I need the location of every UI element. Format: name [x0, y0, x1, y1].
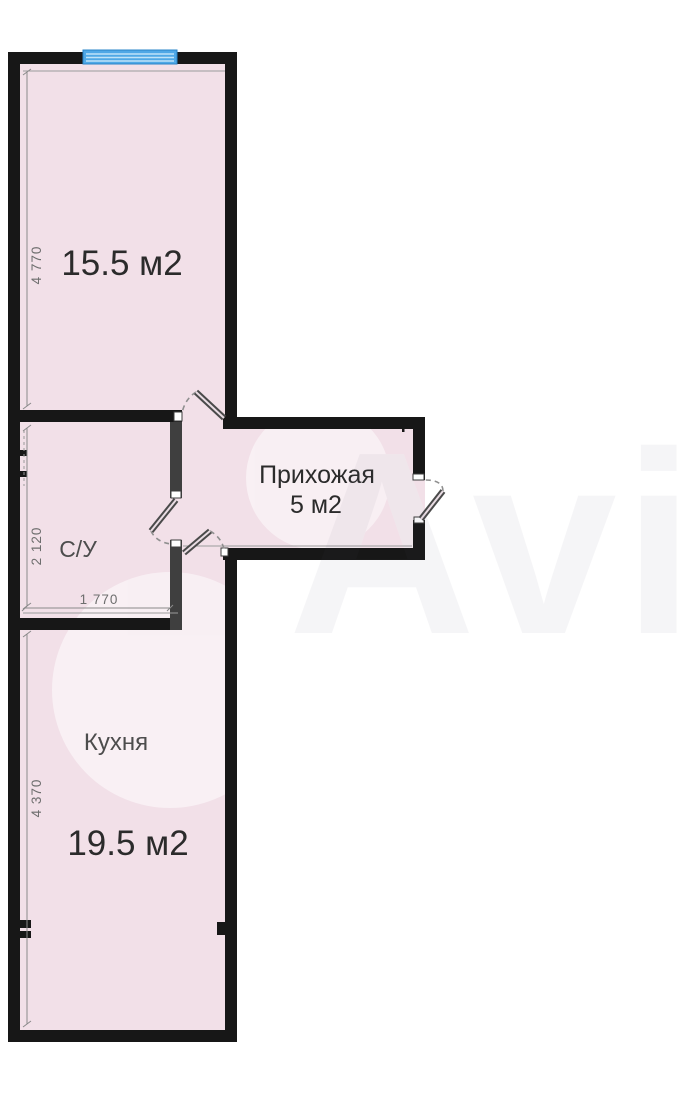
dimension-living-wall: 4 770 [29, 246, 44, 285]
door-jamb-kitchen [221, 548, 228, 556]
floor-plan-image: Avito [0, 0, 700, 1095]
door-jamb-bathroom-bottom [171, 540, 181, 547]
wall-bottom [8, 1030, 237, 1042]
wall-bathroom-bottom [8, 618, 182, 630]
wall-bathroom-right-lower [170, 540, 182, 630]
wall-right-living [225, 52, 237, 429]
wall-notch-kitchen-left-2 [20, 931, 31, 938]
dimension-bathroom-wall: 2 120 [29, 527, 44, 566]
wall-left [8, 52, 20, 1042]
wall-notch-kitchen-left-1 [20, 920, 31, 928]
wall-living-bottom [8, 410, 182, 422]
kitchen-area-label: 19.5 м2 [67, 824, 188, 863]
wall-bathroom-right-upper [170, 422, 182, 498]
watermark-text: Avito [288, 399, 700, 689]
floor-plan-svg: Avito [0, 0, 700, 1095]
door-jamb-living [174, 412, 182, 421]
living-room-area-label: 15.5 м2 [61, 244, 182, 283]
window [83, 50, 177, 64]
dimension-bathroom-width: 1 770 [80, 592, 119, 607]
bathroom-name-label: С/У [59, 536, 97, 562]
door-jamb-bathroom-top [171, 491, 181, 498]
dimension-kitchen-wall: 4 370 [29, 779, 44, 818]
kitchen-name-label: Кухня [84, 729, 148, 756]
wall-right-kitchen [225, 548, 237, 1042]
wall-notch-kitchen-right [217, 922, 225, 935]
